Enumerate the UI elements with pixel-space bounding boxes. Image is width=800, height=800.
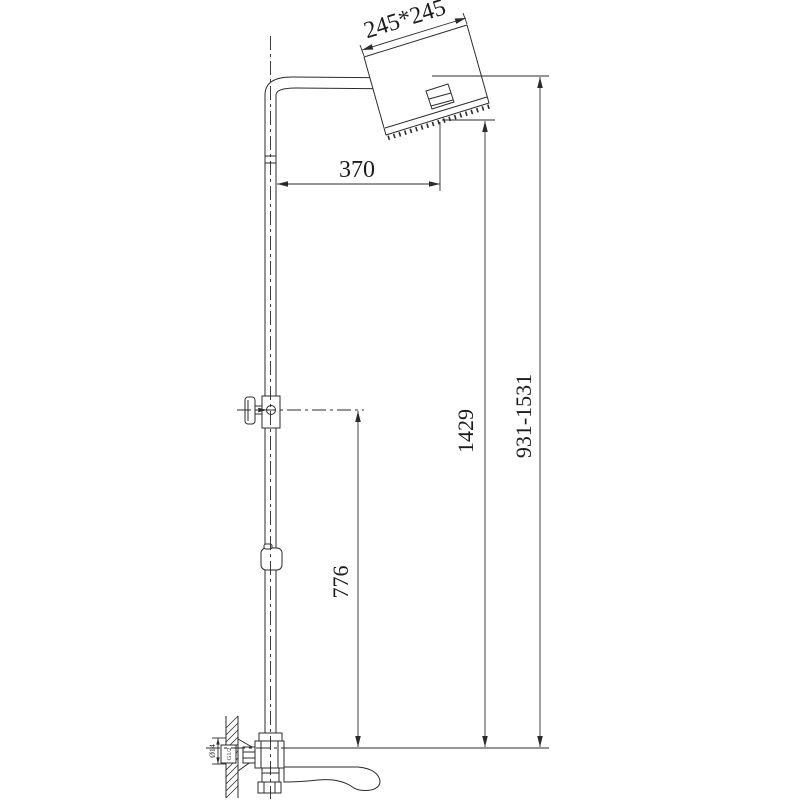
spout [284, 767, 380, 791]
dim-overall-height: 931-1531 [432, 76, 549, 747]
technical-drawing-page: 245*245 370 776 1429 931-1531 [0, 0, 800, 800]
dim-overall-height-label: 931-1531 [511, 374, 536, 458]
shower-head [364, 25, 491, 138]
dim-arm-reach-label: 370 [339, 157, 375, 183]
slider-knob [245, 397, 255, 424]
hose-slider [261, 544, 282, 570]
mixer-body [255, 741, 284, 768]
dim-column-height-label: 1429 [453, 409, 478, 453]
shower-system-dimension-drawing: 245*245 370 776 1429 931-1531 [0, 0, 800, 800]
dim-column-height: 1429 [442, 120, 495, 747]
holder-slider [245, 396, 280, 428]
wall-thread-label: G1/2 [226, 748, 233, 761]
bottom-hose-nut [258, 782, 281, 793]
wall-adapter-nut [243, 747, 255, 763]
dim-escutcheon-label: Ø14 [208, 744, 217, 758]
center-lines [206, 36, 364, 799]
dim-slider-height-label: 776 [328, 566, 353, 599]
dim-slider-height: 776 [328, 411, 361, 747]
dim-arm-reach: 370 [277, 122, 440, 191]
wall-mixer [221, 733, 380, 793]
